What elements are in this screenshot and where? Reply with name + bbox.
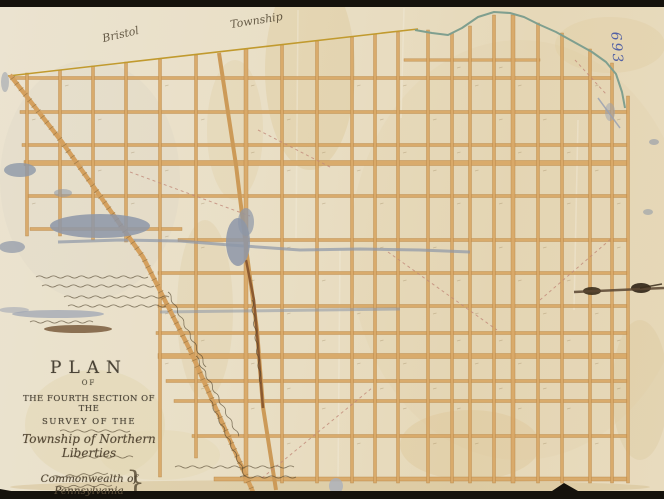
map-title: PLAN — [14, 358, 164, 378]
faint-lot-number-mark — [287, 313, 291, 314]
faint-lot-number-mark — [287, 170, 291, 171]
street-vertical — [511, 15, 515, 483]
faint-lot-number-mark — [201, 119, 205, 120]
scan-border-top — [0, 0, 664, 7]
street-vertical — [537, 23, 540, 483]
faint-lot-number-mark — [322, 340, 326, 341]
street-horizontal — [404, 59, 540, 62]
street-vertical — [92, 66, 95, 240]
street-horizontal — [158, 305, 628, 308]
street-vertical — [611, 63, 614, 483]
scanned-survey-map: } Bristol Township 693 PLAN OF THE FOURT… — [0, 0, 664, 499]
faint-lot-number-mark — [357, 363, 361, 364]
township-boundary-line — [8, 29, 418, 76]
faint-lot-number-mark — [403, 85, 407, 86]
faint-lot-number-mark — [287, 443, 291, 444]
damage-blob — [50, 214, 150, 238]
faint-lot-number-mark — [322, 280, 326, 281]
street-vertical — [451, 33, 454, 483]
damage-blob — [0, 241, 25, 253]
street-vertical — [589, 49, 592, 483]
street-vertical — [374, 34, 377, 483]
faint-lot-number-mark — [322, 203, 326, 204]
damage-blob — [44, 325, 112, 333]
street-vertical — [316, 41, 319, 483]
faint-lot-number-mark — [403, 408, 407, 409]
street-horizontal — [14, 77, 612, 80]
faint-lot-number-mark — [357, 85, 361, 86]
street-horizontal — [156, 332, 628, 335]
faint-lot-number-mark — [380, 119, 384, 120]
street-vertical — [351, 37, 354, 483]
illegible-script-line — [68, 305, 166, 307]
title-block: PLAN OF THE FOURTH SECTION OF THE SURVEY… — [14, 358, 164, 497]
street-vertical — [397, 32, 400, 483]
faint-lot-number-mark — [251, 408, 255, 409]
faint-lot-number-mark — [357, 443, 361, 444]
title-commonwealth-script: Commonwealth of Pennsylvania — [14, 473, 164, 497]
street-vertical — [195, 55, 198, 458]
street-vertical — [427, 30, 430, 483]
damage-blob — [1, 72, 9, 92]
faint-lot-number-mark — [380, 388, 384, 389]
archive-number: 693 — [607, 31, 625, 65]
street-vertical — [469, 26, 472, 483]
damage-blob — [643, 209, 653, 215]
damage-blob — [238, 208, 254, 236]
street-vertical — [561, 33, 564, 483]
street-horizontal — [158, 272, 628, 275]
title-township-script: Township of Northern Liberties — [14, 432, 164, 460]
damage-blob — [4, 163, 36, 177]
faint-lot-number-mark — [357, 170, 361, 171]
street-horizontal — [158, 354, 628, 359]
damage-blob — [0, 307, 29, 313]
street-vertical — [59, 70, 62, 236]
faint-lot-number-mark — [595, 443, 599, 444]
faint-lot-number-mark — [165, 363, 169, 364]
damage-blob — [649, 139, 659, 145]
title-survey-line: SURVEY OF THE — [14, 417, 164, 427]
paper-crease — [338, 250, 340, 480]
faint-lot-number-mark — [322, 408, 326, 409]
title-section-line: THE FOURTH SECTION OF THE — [14, 394, 164, 414]
title-of: OF — [14, 379, 164, 387]
faint-lot-number-mark — [251, 363, 255, 364]
street-horizontal — [174, 400, 628, 403]
street-vertical — [493, 15, 496, 483]
street-vertical — [125, 62, 128, 242]
street-vertical — [281, 45, 284, 483]
paper-stain — [207, 60, 263, 200]
faint-lot-number-mark — [201, 203, 205, 204]
faint-lot-number-mark — [287, 388, 291, 389]
damage-blob — [54, 189, 72, 197]
illegible-script-line — [30, 321, 93, 323]
faint-lot-number-mark — [165, 85, 169, 86]
